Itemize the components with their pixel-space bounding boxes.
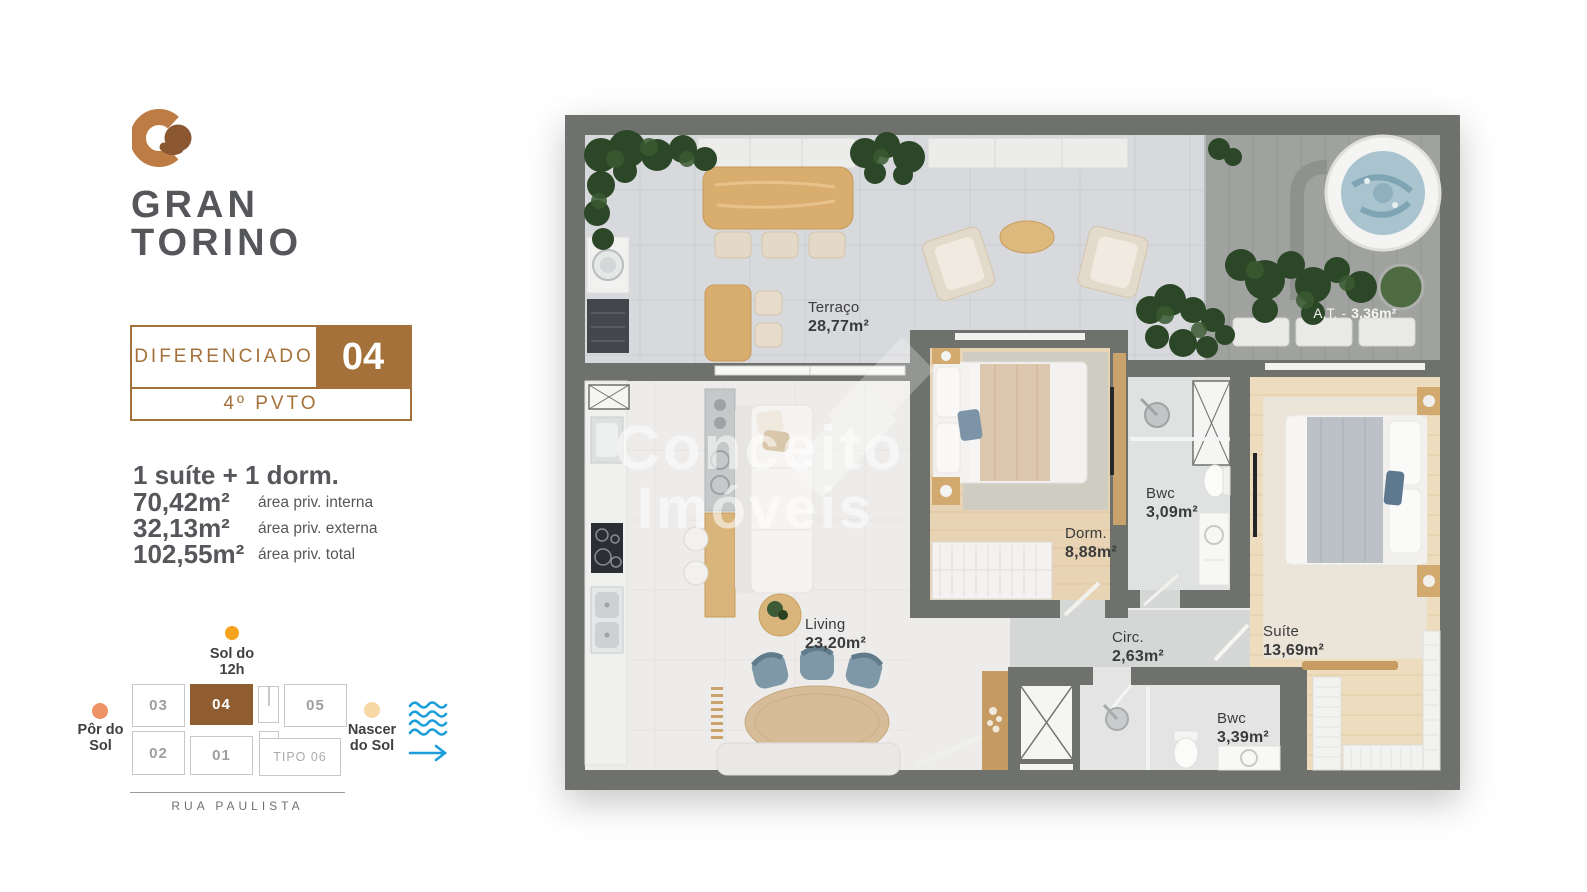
area-label: área priv. total bbox=[258, 546, 355, 567]
floor-plan: Conceito Imóveis Terraço28,77m² A.T. -3,… bbox=[565, 115, 1460, 790]
room-label-suite: Suíte13,69m² bbox=[1263, 623, 1324, 661]
site-unit-01: 01 bbox=[190, 736, 253, 775]
area-label: área priv. interna bbox=[258, 494, 373, 515]
area-row-interna: 70,42m² área priv. interna bbox=[133, 489, 433, 515]
room-label-circ: Circ.2,63m² bbox=[1112, 629, 1164, 667]
sun-set-label: Pôr doSol bbox=[63, 722, 138, 754]
sun-set-icon bbox=[92, 703, 108, 719]
area-row-total: 102,55m² área priv. total bbox=[133, 541, 433, 567]
site-core-divider bbox=[268, 686, 270, 706]
site-unit-03: 03 bbox=[132, 684, 185, 727]
room-label-dorm: Dorm.8,88m² bbox=[1065, 525, 1117, 563]
unit-number: 04 bbox=[316, 327, 410, 387]
sun-rise-icon bbox=[364, 702, 380, 718]
unit-badge: DIFERENCIADO 04 4º PVTO bbox=[130, 325, 412, 421]
street-line bbox=[130, 792, 345, 793]
site-plan: Sol do12h Pôr doSol Nascerdo Sol 03 04 0… bbox=[75, 618, 460, 828]
area-value: 32,13m² bbox=[133, 515, 258, 541]
room-label-bwc1: Bwc3,09m² bbox=[1146, 485, 1198, 523]
unit-type-label: DIFERENCIADO bbox=[132, 327, 316, 387]
area-row-externa: 32,13m² área priv. externa bbox=[133, 515, 433, 541]
sun-noon-icon bbox=[225, 626, 239, 640]
brand-name-line1: GRAN bbox=[131, 184, 259, 227]
area-value: 102,55m² bbox=[133, 541, 258, 567]
brand-name-line2: TORINO bbox=[131, 222, 302, 265]
area-value: 70,42m² bbox=[133, 489, 258, 515]
page: GRAN TORINO DIFERENCIADO 04 4º PVTO 1 su… bbox=[0, 0, 1587, 892]
room-label-terraco: Terraço28,77m² bbox=[808, 299, 869, 337]
street-name: RUA PAULISTA bbox=[130, 799, 345, 813]
area-label: área priv. externa bbox=[258, 520, 377, 541]
site-unit-tipo06: TIPO 06 bbox=[259, 738, 341, 776]
jacuzzi bbox=[1326, 136, 1440, 250]
brand-logo-icon bbox=[132, 106, 196, 178]
room-label-bwc2: Bwc3,39m² bbox=[1217, 710, 1269, 748]
floor-label: 4º PVTO bbox=[132, 387, 410, 419]
room-label-at: A.T. -3,36m² bbox=[1295, 305, 1415, 322]
sun-noon-label: Sol do12h bbox=[192, 646, 272, 678]
site-unit-02: 02 bbox=[132, 731, 185, 775]
site-unit-04-highlighted: 04 bbox=[190, 684, 253, 725]
sea-waves-icon bbox=[407, 700, 451, 766]
site-unit-05: 05 bbox=[284, 684, 347, 727]
room-label-living: Living23,20m² bbox=[805, 616, 866, 654]
